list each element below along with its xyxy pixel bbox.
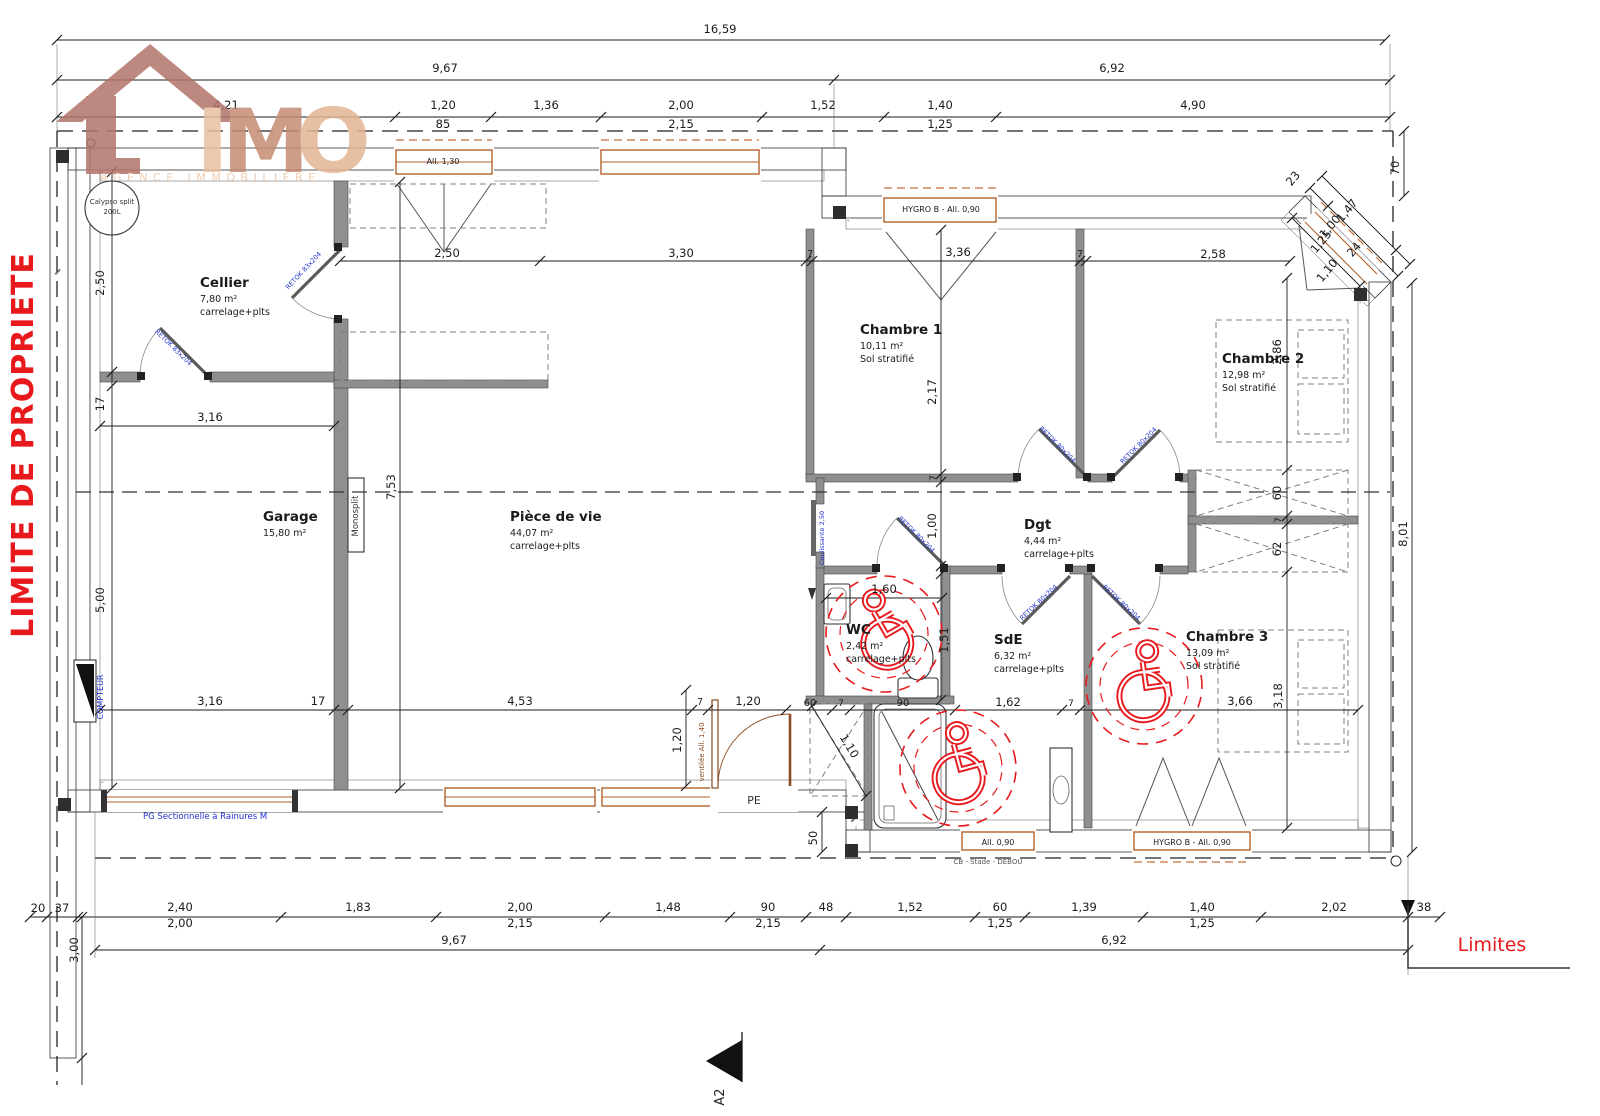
- room-name-chambre-3: Chambre 3: [1186, 629, 1268, 645]
- dimension-label: 7: [1077, 249, 1083, 260]
- dimension-label: 3,66: [1227, 694, 1253, 708]
- dimension-label: 2,50: [93, 270, 107, 296]
- dimension-label: 2,00: [668, 98, 694, 112]
- dimension-label: 1,62: [995, 695, 1021, 709]
- kitchen-counter: [340, 332, 548, 380]
- dimension-label: 1,40: [927, 98, 953, 112]
- window-label: HYGRO B - All. 0,90: [1153, 838, 1231, 847]
- room-area-chambre-2: 12,98 m²: [1222, 370, 1265, 381]
- annotation: PG Sectionnelle à Rainures M: [143, 812, 267, 822]
- dimension-label: 2,58: [1200, 247, 1226, 261]
- dimension-label: 90: [761, 900, 776, 914]
- kitchen-cabinets: [350, 184, 546, 228]
- dimension-label: 23: [1283, 168, 1303, 188]
- dimension-label: 2,02: [1321, 900, 1347, 914]
- post: [1155, 564, 1163, 572]
- room-floor-chambre-1: Sol stratifié: [860, 354, 914, 365]
- post: [872, 564, 880, 572]
- dimension-label: 5,00: [93, 587, 107, 613]
- room-floor-chambre-2: Sol stratifié: [1222, 383, 1276, 394]
- dimension-label: 90: [897, 698, 910, 709]
- furniture-dashed: [340, 184, 1348, 796]
- dimension-label: 9,67: [441, 933, 467, 947]
- dimension-label: 1,20: [735, 694, 761, 708]
- post: [58, 798, 71, 811]
- property-limit-label: LIMITE DE PROPRIETE: [6, 252, 41, 638]
- dimension-label: 37: [55, 901, 70, 915]
- dimension-label: 2,00: [167, 916, 193, 930]
- interior-walls: [100, 181, 1358, 830]
- dimension-label: 8,01: [1396, 521, 1410, 547]
- room-area-sde: 6,32 m²: [994, 651, 1031, 662]
- room-area-chambre-3: 13,09 m²: [1186, 648, 1229, 659]
- room-area-wc: 2,42 m²: [846, 641, 883, 652]
- dimension-label: 62: [1270, 542, 1284, 557]
- dimension-label: 2,00: [507, 900, 533, 914]
- annotation: Calypso split: [90, 198, 135, 206]
- agency-logo: I M O AGENCE IMMOBILIERE: [56, 44, 371, 193]
- floor-plan-drawing: 16,599,676,924,211,201,362,001,521,404,9…: [0, 0, 1600, 1116]
- dimension-label: 1,20: [670, 727, 684, 753]
- dimension-label: 2,15: [755, 916, 781, 930]
- post: [1083, 473, 1091, 481]
- dimension-label: 3,16: [197, 694, 223, 708]
- dimension-label: 50: [806, 831, 820, 846]
- annotation: COMPTEUR: [96, 674, 105, 719]
- room-area-cellier: 7,80 m²: [200, 294, 237, 305]
- room-area-garage: 15,80 m²: [263, 528, 306, 539]
- room-floor-wc: carrelage+plts: [846, 654, 916, 665]
- floor-plan-page: 16,599,676,924,211,201,362,001,521,404,9…: [0, 0, 1600, 1116]
- dimension-label: 70: [1388, 161, 1402, 176]
- dimension-label: 3,16: [197, 410, 223, 424]
- post: [56, 150, 69, 163]
- dimension-label: 1,40: [1189, 900, 1215, 914]
- post: [997, 564, 1005, 572]
- post: [334, 243, 342, 251]
- room-floor-chambre-3: Sol stratifié: [1186, 661, 1240, 672]
- post: [1107, 473, 1115, 481]
- post: [1087, 564, 1095, 572]
- dimension-label: 1,52: [897, 900, 923, 914]
- post: [1013, 473, 1021, 481]
- limites-label: Limites: [1458, 934, 1527, 956]
- window-label: All. 1,30: [427, 157, 460, 166]
- room-name-dgt: Dgt: [1024, 517, 1052, 533]
- dimension-label: 7: [1274, 517, 1284, 523]
- dimension-label: 60: [804, 698, 817, 709]
- dimension-label: 1,36: [533, 98, 559, 112]
- door-tag: RETOK 80x204: [1119, 426, 1159, 466]
- room-area-chambre-1: 10,11 m²: [860, 341, 903, 352]
- dimension-label: 1,48: [655, 900, 681, 914]
- post: [204, 372, 212, 380]
- dimension-label: 60: [993, 900, 1008, 914]
- dimension-label: 2,50: [434, 246, 460, 260]
- dimension-label: 7: [838, 699, 844, 709]
- dimension-label: 3,00: [67, 937, 81, 963]
- sliding-door: [808, 500, 816, 600]
- doors: [140, 249, 1180, 624]
- dimension-label: 7: [807, 249, 813, 260]
- door-tag: RETOK 80x204: [1037, 425, 1077, 465]
- window-label: All. 0,90: [982, 838, 1015, 847]
- dimension-label: 1,52: [810, 98, 836, 112]
- room-floor-dgt: carrelage+plts: [1024, 549, 1094, 560]
- dimension-label: 4,53: [507, 694, 533, 708]
- dimension-label: 4,90: [1180, 98, 1206, 112]
- logo-tagline: AGENCE IMMOBILIERE: [100, 171, 321, 184]
- post: [940, 564, 948, 572]
- dimension-label: 6,92: [1101, 933, 1127, 947]
- dimension-label: 1,39: [1071, 900, 1097, 914]
- annotation: Coulissante 2,50: [818, 511, 826, 565]
- dimension-label: 1,00: [925, 513, 939, 539]
- dimension-label: 17: [93, 397, 107, 412]
- dimension-label: 17: [311, 694, 326, 708]
- dimension-label: 2,40: [167, 900, 193, 914]
- post: [1065, 564, 1073, 572]
- post: [1354, 288, 1367, 301]
- dimension-label: 1,20: [430, 98, 456, 112]
- dimension-label: 38: [1417, 900, 1432, 914]
- dimension-label: 3,18: [1271, 683, 1285, 709]
- dimension-label: 7,53: [384, 474, 398, 500]
- post: [845, 806, 858, 819]
- annotation: 200L: [103, 208, 120, 216]
- post: [334, 315, 342, 323]
- dimension-label: 1,25: [1189, 916, 1215, 930]
- dimension-label: 2,17: [925, 379, 939, 405]
- room-name-garage: Garage: [263, 509, 318, 525]
- room-name-piece-de-vie: Pièce de vie: [510, 509, 602, 525]
- dimension-label: 2,15: [668, 117, 694, 131]
- room-name-chambre-1: Chambre 1: [860, 322, 942, 338]
- annotation: Monosplit: [351, 495, 361, 537]
- dimension-label: 2,15: [507, 916, 533, 930]
- dimension-label: 1,51: [937, 627, 951, 653]
- annotation: A2: [713, 1088, 728, 1105]
- dimension-label: 1,25: [987, 916, 1013, 930]
- room-name-cellier: Cellier: [200, 275, 249, 291]
- dimension-label: 7: [697, 697, 703, 708]
- annotation: ventilée All. 1,40: [698, 722, 706, 781]
- annotation: CB - Stade - DEBOU: [954, 858, 1023, 866]
- door-tag: RETOK 80x204: [1018, 583, 1059, 622]
- dimension-label: 48: [819, 900, 834, 914]
- dimension-label: 3,30: [668, 246, 694, 260]
- property-limit-lines: [57, 131, 1393, 1085]
- dimension-label: 7: [929, 475, 939, 481]
- dimension-label: 85: [436, 117, 451, 131]
- section-marker-triangle: [706, 1040, 742, 1082]
- dimension-label: 1,10: [837, 731, 862, 760]
- dimension-label: 6,92: [1099, 61, 1125, 75]
- room-area-dgt: 4,44 m²: [1024, 536, 1061, 547]
- room-floor-sde: carrelage+plts: [994, 664, 1064, 675]
- room-floor-cellier: carrelage+plts: [200, 307, 270, 318]
- window-label: HYGRO B - All. 0,90: [902, 205, 980, 214]
- dimension-label: 3,36: [945, 245, 971, 259]
- door-tag: RETOK 83x204: [153, 328, 194, 367]
- post: [845, 844, 858, 857]
- dimension-label: 60: [1270, 486, 1284, 501]
- dimension-label: 7: [1068, 699, 1074, 709]
- post: [833, 206, 846, 219]
- annotation: PE: [747, 794, 761, 807]
- dimension-label: 16,59: [704, 22, 737, 36]
- room-name-chambre-2: Chambre 2: [1222, 351, 1304, 367]
- dimension-label: 1,60: [871, 582, 897, 596]
- dimension-label: 20: [31, 901, 46, 915]
- post: [1175, 473, 1183, 481]
- dimension-label: 1,25: [927, 117, 953, 131]
- room-name-wc: WC: [846, 622, 871, 638]
- post: [137, 372, 145, 380]
- dimension-label: 9,67: [432, 61, 458, 75]
- bed-chambre-2: [1216, 320, 1348, 442]
- room-name-sde: SdE: [994, 632, 1023, 648]
- door-tag: RETOK 80x204: [1101, 583, 1142, 622]
- room-area-piece-de-vie: 44,07 m²: [510, 528, 553, 539]
- dimension-label: 1,83: [345, 900, 371, 914]
- room-floor-piece-de-vie: carrelage+plts: [510, 541, 580, 552]
